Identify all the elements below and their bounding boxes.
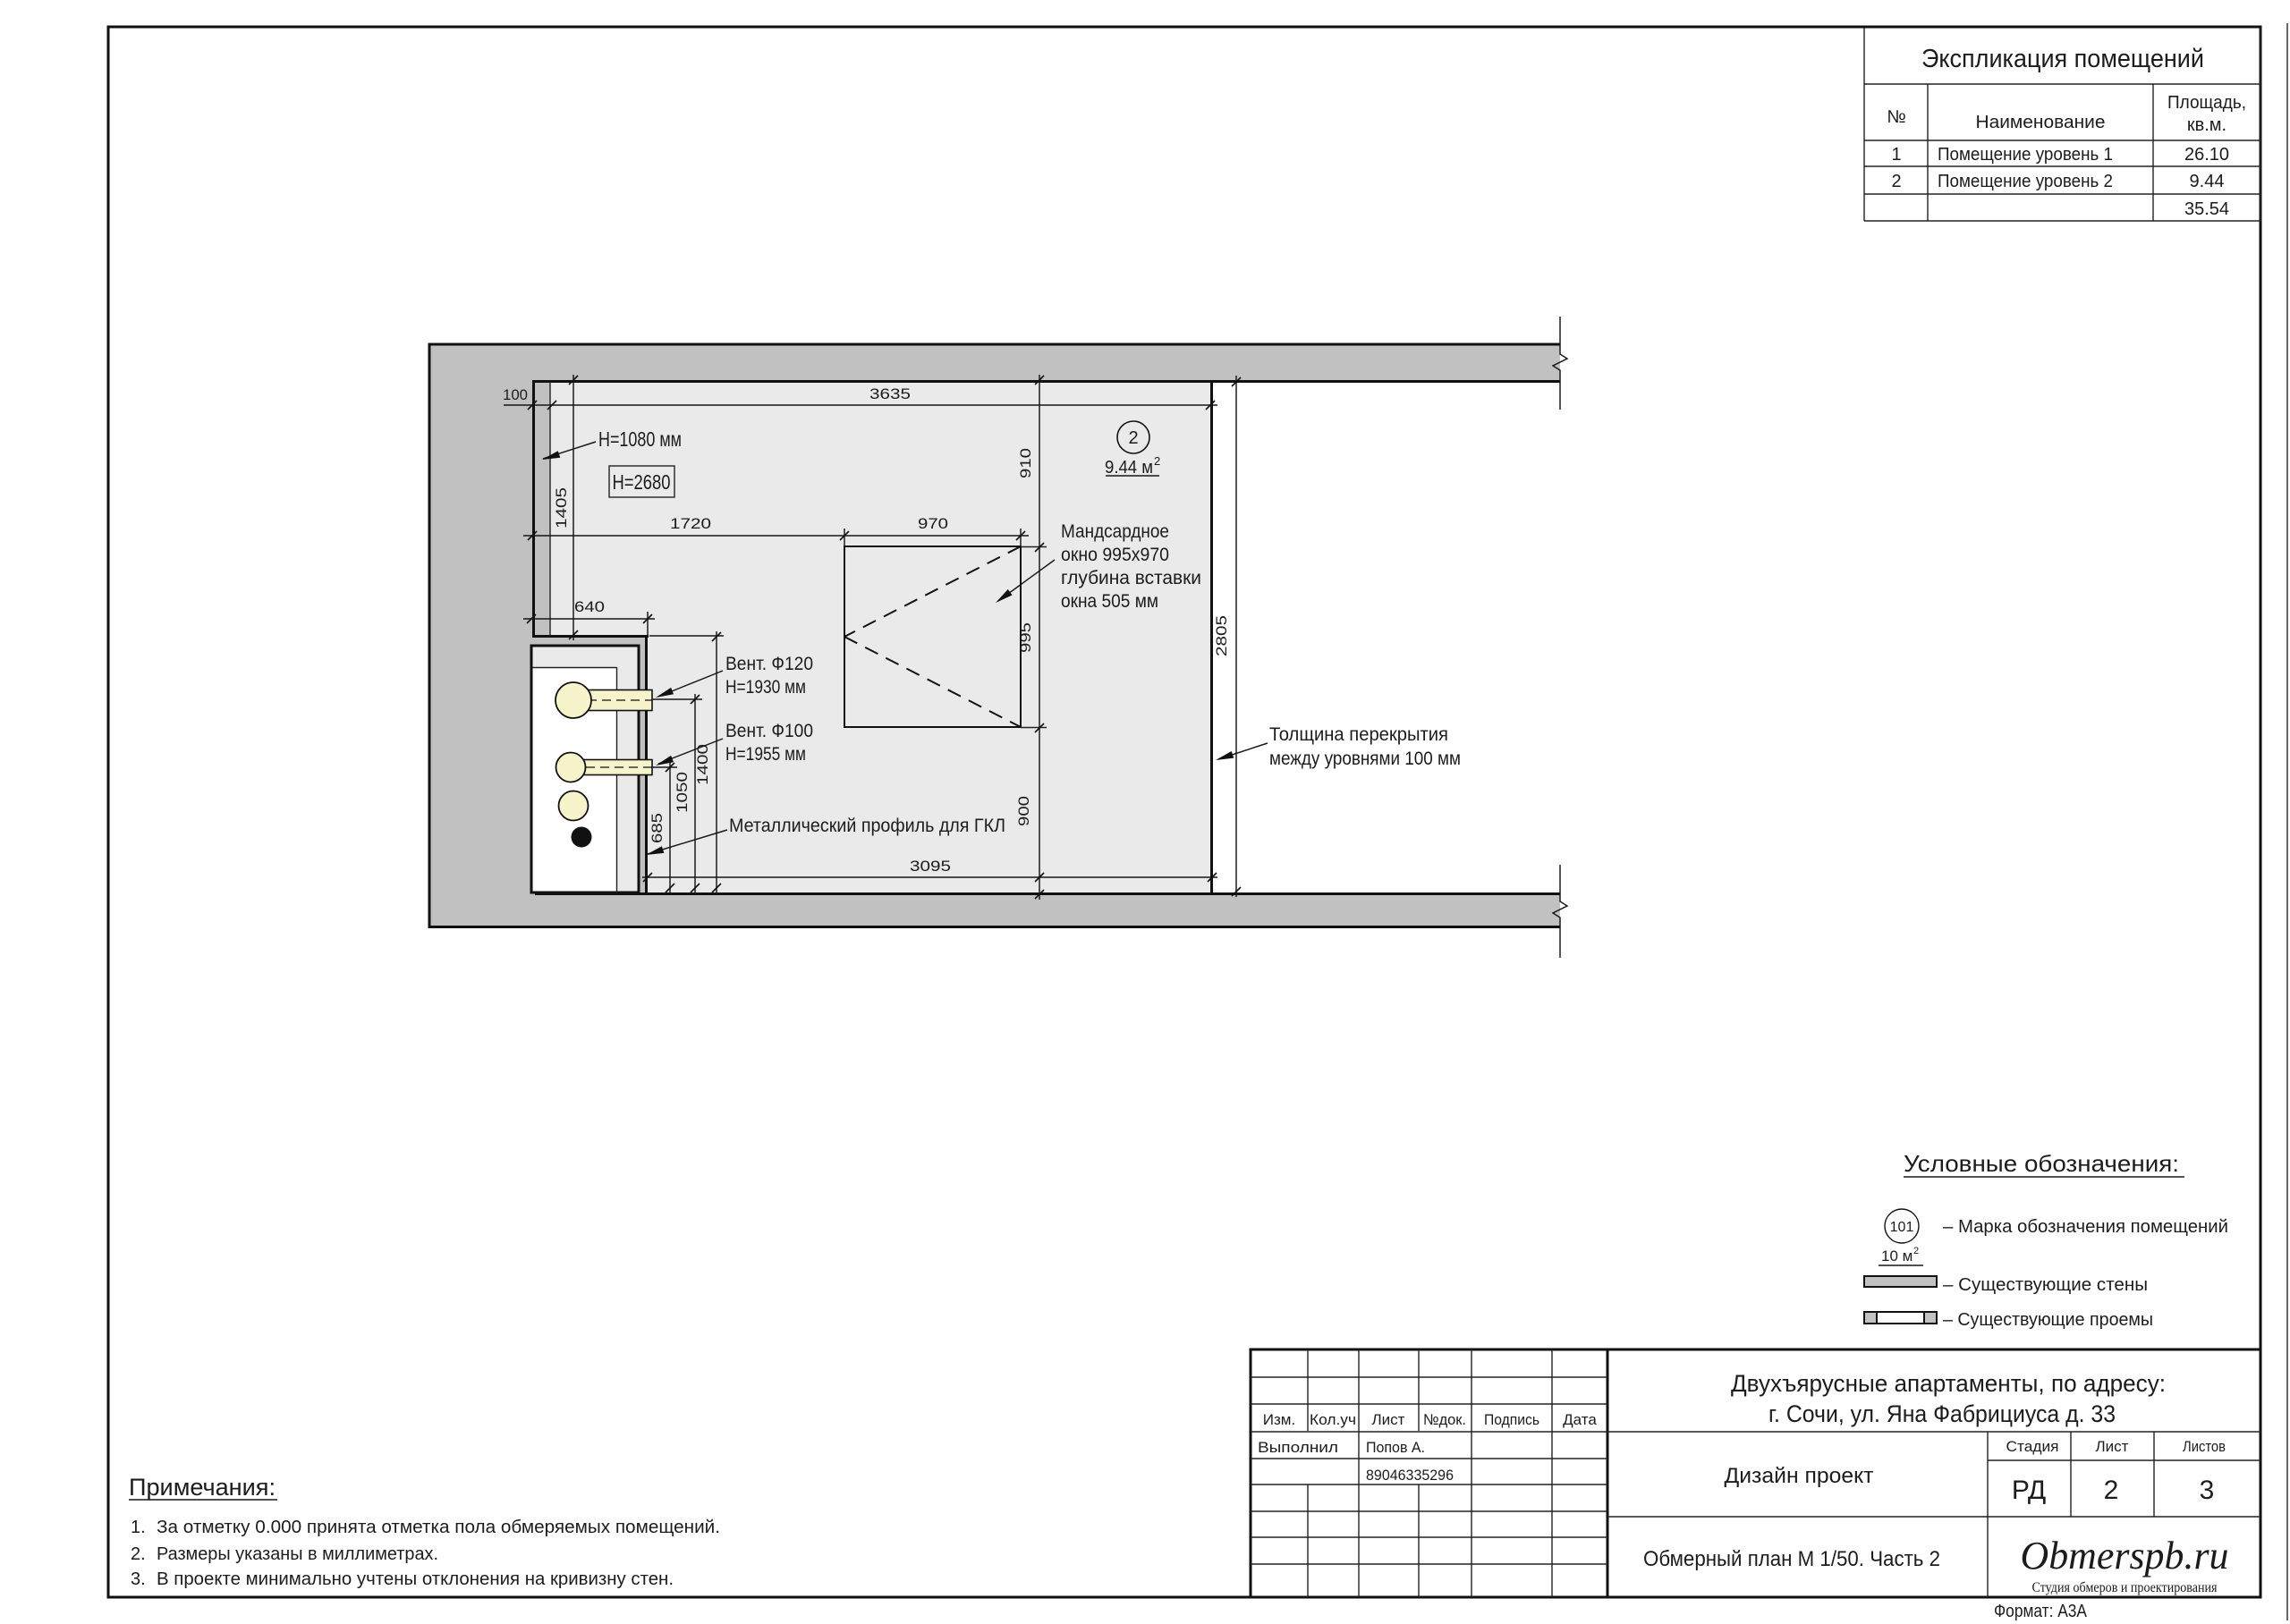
svg-text:2805: 2805 (1213, 615, 1230, 656)
svg-text:9.44: 9.44 (2190, 172, 2225, 191)
svg-text:между уровнями 100 мм: между уровнями 100 мм (1269, 749, 1461, 769)
svg-text:Помещение уровень 1: Помещение уровень 1 (1938, 145, 2113, 165)
svg-text:2: 2 (1913, 1246, 1919, 1256)
svg-text:Вент. Ф100: Вент. Ф100 (725, 721, 813, 741)
svg-text:Вент. Ф120: Вент. Ф120 (725, 654, 813, 674)
svg-text:101: 101 (1890, 1220, 1914, 1235)
svg-text:H=1080 мм: H=1080 мм (598, 427, 682, 451)
svg-text:3095: 3095 (910, 858, 951, 875)
svg-text:1050: 1050 (674, 772, 691, 813)
svg-text:2.: 2. (131, 1544, 146, 1564)
svg-text:Н=1955 мм: Н=1955 мм (725, 744, 806, 765)
svg-text:100: 100 (503, 386, 528, 403)
svg-text:Лист: Лист (1372, 1411, 1405, 1428)
svg-text:2: 2 (1154, 454, 1160, 468)
svg-text:640: 640 (574, 598, 605, 615)
svg-text:Стадия: Стадия (2006, 1438, 2059, 1455)
svg-text:Лист: Лист (2096, 1438, 2129, 1455)
svg-text:1400: 1400 (694, 744, 711, 785)
svg-text:1: 1 (1891, 145, 1901, 165)
svg-text:Obmerspb.ru: Obmerspb.ru (2021, 1534, 2229, 1577)
svg-text:Наименование: Наименование (1976, 113, 2106, 132)
svg-text:окно 995х970: окно 995х970 (1061, 545, 1169, 565)
svg-text:H=2680: H=2680 (613, 470, 671, 494)
svg-text:Обмерный план М 1/50. Часть 2: Обмерный план М 1/50. Часть 2 (1643, 1547, 1940, 1571)
svg-text:Студия обмеров и проектировани: Студия обмеров и проектирования (2032, 1580, 2218, 1595)
svg-text:Попов А.: Попов А. (1366, 1439, 1425, 1456)
svg-text:2: 2 (1891, 172, 1901, 191)
svg-text:кв.м.: кв.м. (2187, 115, 2226, 135)
svg-text:Формат: А3А: Формат: А3А (1994, 1602, 2088, 1621)
svg-text:Кол.уч: Кол.уч (1310, 1411, 1356, 1428)
svg-text:Площадь,: Площадь, (2167, 93, 2246, 113)
svg-text:– Марка обозначения помещений: – Марка обозначения помещений (1943, 1217, 2228, 1237)
svg-text:№док.: №док. (1423, 1411, 1466, 1428)
svg-text:3635: 3635 (869, 385, 911, 402)
svg-text:3.: 3. (131, 1569, 146, 1589)
svg-text:– Существующие проемы: – Существующие проемы (1943, 1310, 2153, 1330)
svg-text:35.54: 35.54 (2184, 199, 2229, 219)
svg-text:2: 2 (1128, 428, 1138, 448)
svg-text:Толщина перекрытия: Толщина перекрытия (1269, 724, 1448, 745)
svg-text:Условные обозначения:: Условные обозначения: (1904, 1150, 2179, 1177)
svg-text:Металлический профиль для ГКЛ: Металлический профиль для ГКЛ (729, 816, 1005, 836)
svg-text:900: 900 (1015, 796, 1032, 826)
svg-text:В проекте минимально учтены от: В проекте минимально учтены отклонения н… (157, 1569, 674, 1589)
svg-text:Помещение уровень 2: Помещение уровень 2 (1938, 172, 2113, 191)
svg-text:Размеры указаны в миллиметрах.: Размеры указаны в миллиметрах. (157, 1544, 438, 1564)
svg-text:3: 3 (2200, 1476, 2215, 1505)
svg-text:РД: РД (2012, 1476, 2046, 1505)
svg-text:9.44 м: 9.44 м (1105, 458, 1153, 478)
svg-text:1.: 1. (131, 1518, 146, 1537)
svg-text:Двухъярусные апартаменты, по а: Двухъярусные апартаменты, по адресу: (1731, 1370, 2166, 1397)
svg-text:89046335296: 89046335296 (1366, 1467, 1454, 1484)
svg-text:995: 995 (1017, 622, 1034, 653)
svg-text:26.10: 26.10 (2184, 145, 2229, 165)
svg-text:1405: 1405 (553, 487, 570, 529)
svg-text:Мандсардное: Мандсардное (1061, 521, 1169, 542)
svg-text:Экспликация помещений: Экспликация помещений (1921, 45, 2204, 73)
svg-text:г. Сочи, ул. Яна Фабрициуса д.: г. Сочи, ул. Яна Фабрициуса д. 33 (1768, 1400, 2116, 1427)
svg-text:685: 685 (649, 813, 666, 843)
svg-text:Выполнил: Выполнил (1258, 1439, 1338, 1456)
svg-text:Изм.: Изм. (1263, 1411, 1295, 1428)
svg-text:№: № (1887, 107, 1905, 127)
svg-text:910: 910 (1017, 448, 1034, 478)
svg-text:Примечания:: Примечания: (129, 1474, 276, 1501)
svg-text:Листов: Листов (2183, 1438, 2226, 1455)
svg-text:окна 505 мм: окна 505 мм (1061, 591, 1158, 612)
svg-text:– Существующие стены: – Существующие стены (1943, 1275, 2148, 1295)
svg-text:1720: 1720 (670, 515, 711, 532)
svg-text:За отметку 0.000 принята отмет: За отметку 0.000 принята отметка пола об… (157, 1518, 720, 1537)
svg-text:Дата: Дата (1563, 1411, 1597, 1428)
svg-text:Н=1930 мм: Н=1930 мм (725, 677, 806, 698)
svg-text:глубина вставки: глубина вставки (1061, 568, 1201, 588)
svg-text:Дизайн проект: Дизайн проект (1725, 1464, 1874, 1488)
svg-text:2: 2 (2104, 1476, 2119, 1505)
svg-text:Подпись: Подпись (1484, 1411, 1539, 1428)
svg-text:10 м: 10 м (1881, 1248, 1913, 1265)
svg-text:970: 970 (918, 515, 948, 532)
